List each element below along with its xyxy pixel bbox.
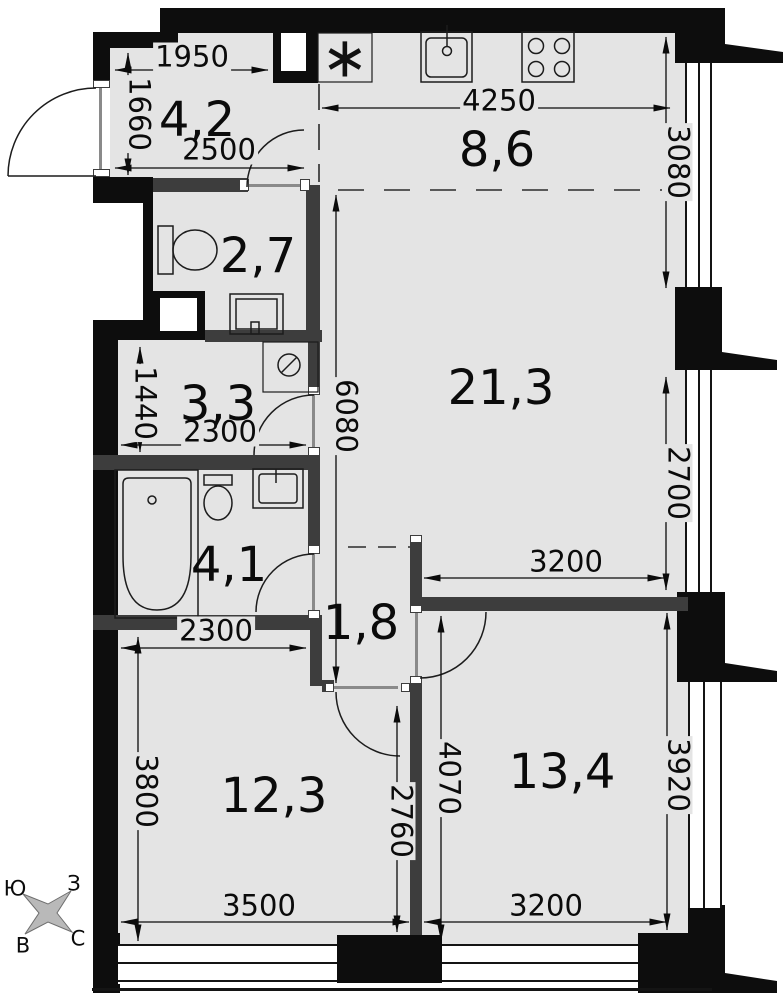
jamb [308, 545, 320, 554]
compass-label-nw: Ю [4, 879, 27, 900]
vent-shaft-2 [160, 298, 197, 331]
window-bedroom [118, 944, 337, 984]
dim-label: 1440 [131, 364, 160, 442]
dim-label: 3500 [220, 892, 298, 921]
wall-corridor-left [310, 630, 322, 686]
window-frame [118, 980, 337, 982]
pillar-bottom-left [93, 933, 120, 993]
dim-label: 3920 [664, 736, 693, 814]
threshold-room2-door [415, 613, 418, 678]
jamb [410, 535, 422, 543]
wall-bath-right [308, 470, 320, 552]
entrance-door [8, 88, 96, 176]
room-area-bedroom-2: 13,4 [509, 748, 616, 796]
wall-wc-right [306, 185, 320, 340]
jamb [308, 447, 320, 456]
window-frame [720, 682, 722, 908]
window-frame [710, 63, 712, 287]
pillar-right-low [688, 905, 725, 935]
threshold-dressing-door [312, 394, 315, 455]
dim-label: 2300 [177, 617, 255, 646]
wall-top [160, 8, 690, 33]
compass-label-sw: В [16, 936, 30, 957]
jamb [93, 169, 110, 177]
window-frame [703, 682, 705, 908]
dim-label: 6080 [332, 377, 361, 455]
wall-left [93, 340, 118, 935]
facade-sill-line [92, 988, 712, 991]
wall-wc-bottom [205, 330, 322, 342]
dim-label: 2700 [664, 444, 693, 522]
jamb [410, 676, 422, 684]
floor-plan: ∗ 1950 1660 2500 4250 3080 2700 3200 608… [0, 0, 783, 1000]
room-area-corridor: 1,8 [323, 599, 399, 647]
threshold-wc-door [248, 184, 304, 187]
vent-shaft [281, 33, 306, 71]
room-area-kitchen: 8,6 [459, 126, 535, 174]
facade-fins [722, 44, 783, 993]
window-frame [442, 944, 638, 946]
compass-label-ne: З [67, 874, 80, 895]
jamb [239, 179, 249, 191]
window-frame [698, 63, 700, 287]
pillar-right-mid [675, 287, 722, 370]
dim-label: 4250 [460, 87, 538, 116]
pillar-bottom-middle [337, 935, 442, 983]
threshold-bath-door [312, 554, 315, 612]
wall-living-bottom [412, 597, 688, 611]
room-area-living: 21,3 [448, 364, 555, 412]
window-frame [442, 962, 638, 964]
window-frame [698, 370, 700, 592]
room-area-dressing: 3,3 [180, 380, 256, 428]
dim-label: 3800 [132, 752, 161, 830]
room-area-bathroom: 4,1 [191, 541, 267, 589]
jamb [308, 386, 320, 395]
wall-left-step [93, 177, 153, 203]
dim-label: 2760 [387, 782, 416, 860]
dim-label: 3200 [527, 548, 605, 577]
compass-star [23, 891, 72, 934]
jamb [93, 80, 110, 88]
dim-label: 1660 [125, 75, 154, 153]
dim-label: 3080 [664, 123, 693, 201]
jamb [308, 610, 320, 619]
pillar-bottom-right [638, 933, 725, 993]
pillar-right-top [675, 8, 725, 63]
threshold-bedroom-door [334, 686, 398, 689]
window-frame [710, 370, 712, 592]
wall-dressing-bath [93, 455, 320, 470]
wall-hall-wc [153, 178, 248, 192]
jamb [300, 179, 310, 191]
window-room2 [442, 944, 638, 984]
jamb [325, 683, 334, 692]
dim-label: 4070 [435, 739, 464, 817]
compass-label-se: С [71, 929, 86, 950]
jamb [401, 683, 410, 692]
room-area-wc: 2,7 [220, 232, 296, 280]
room-area-hallway: 4,2 [159, 96, 235, 144]
window-frame [118, 962, 337, 964]
threshold-entrance [99, 88, 102, 177]
window-frame [442, 980, 638, 982]
dim-label: 1950 [153, 43, 231, 72]
wall-niche [93, 203, 143, 320]
jamb [410, 605, 422, 613]
window-frame [118, 944, 337, 946]
dim-label: 3200 [507, 892, 585, 921]
room-area-bedroom: 12,3 [221, 772, 328, 820]
